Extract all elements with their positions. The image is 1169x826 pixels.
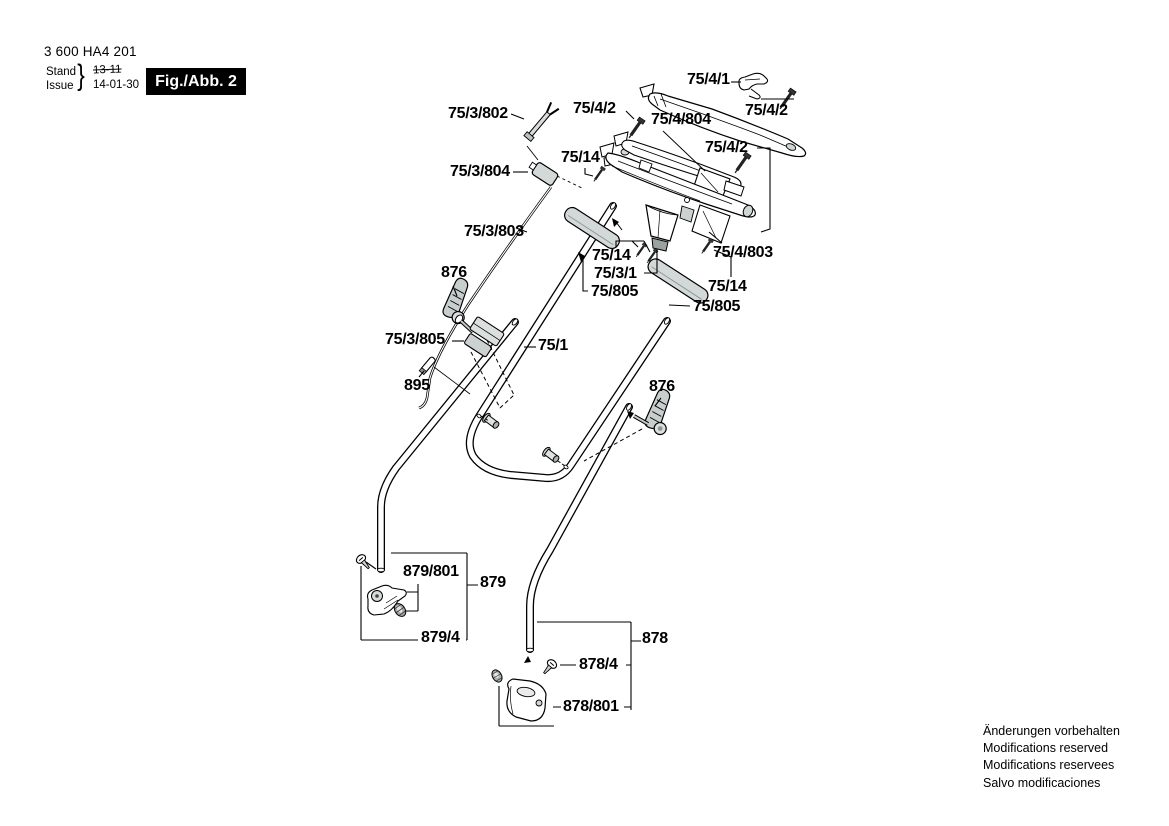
part-label-75-4-804: 75/4/804 <box>651 112 711 129</box>
part-label-876-b: 876 <box>649 379 675 396</box>
disclaimer-block: Änderungen vorbehalten Modifications res… <box>983 723 1120 792</box>
screw-879-4 <box>355 553 373 572</box>
release-lever <box>739 73 768 99</box>
carriage-bolt-right <box>541 446 561 465</box>
part-label-878-801: 878/801 <box>563 699 619 716</box>
lower-handle-tube-right <box>526 403 632 652</box>
foot-bracket <box>507 679 546 721</box>
cable-clamp <box>527 159 559 187</box>
part-label-75-805-b: 75/805 <box>693 299 740 316</box>
grip-funnel <box>646 205 678 251</box>
clamp-75-3-805 <box>461 316 504 359</box>
screw-75-14-a <box>592 166 606 183</box>
part-label-75-3-804: 75/3/804 <box>450 164 510 181</box>
part-label-879-801: 879/801 <box>403 564 459 581</box>
grommet <box>490 668 504 684</box>
screw-878-4 <box>540 658 558 677</box>
part-label-75-3-1: 75/3/1 <box>594 266 637 283</box>
part-label-879-4: 879/4 <box>421 630 460 647</box>
part-label-75-4-2-c: 75/4/2 <box>705 140 748 157</box>
part-label-75-3-802: 75/3/802 <box>448 106 508 123</box>
part-label-876-a: 876 <box>441 265 467 282</box>
cable-drawing <box>419 187 551 408</box>
part-label-75-805-a: 75/805 <box>591 284 638 301</box>
part-label-75-4-2-b: 75/4/2 <box>745 103 788 120</box>
part-label-75-1: 75/1 <box>538 338 568 355</box>
screw-75-14-c <box>700 238 714 255</box>
disclaimer-line-fr: Modifications reservees <box>983 757 1120 774</box>
part-label-75-3-805: 75/3/805 <box>385 332 445 349</box>
part-label-878: 878 <box>642 631 668 648</box>
part-label-879: 879 <box>480 575 506 592</box>
disclaimer-line-es: Salvo modificaciones <box>983 775 1120 792</box>
part-label-75-4-2-a: 75/4/2 <box>573 101 616 118</box>
part-label-75-14-b: 75/14 <box>592 248 631 265</box>
disclaimer-line-en: Modifications reserved <box>983 740 1120 757</box>
mount-arrow <box>524 656 531 663</box>
screw-75-4-2-a <box>626 117 645 140</box>
disclaimer-line-de: Änderungen vorbehalten <box>983 723 1120 740</box>
fork-screw <box>524 102 559 141</box>
part-label-895: 895 <box>404 378 430 395</box>
part-label-75-4-803: 75/4/803 <box>713 245 773 262</box>
lower-handle-tube-left <box>377 318 518 572</box>
part-label-75-14-c: 75/14 <box>708 279 747 296</box>
part-label-878-4: 878/4 <box>579 657 618 674</box>
part-label-75-4-1: 75/4/1 <box>687 72 730 89</box>
parts-catalog-page: { "header": { "part_number": "3 600 HA4 … <box>0 0 1169 826</box>
part-label-75-14-a: 75/14 <box>561 150 600 167</box>
part-label-75-3-803: 75/3/803 <box>464 224 524 241</box>
